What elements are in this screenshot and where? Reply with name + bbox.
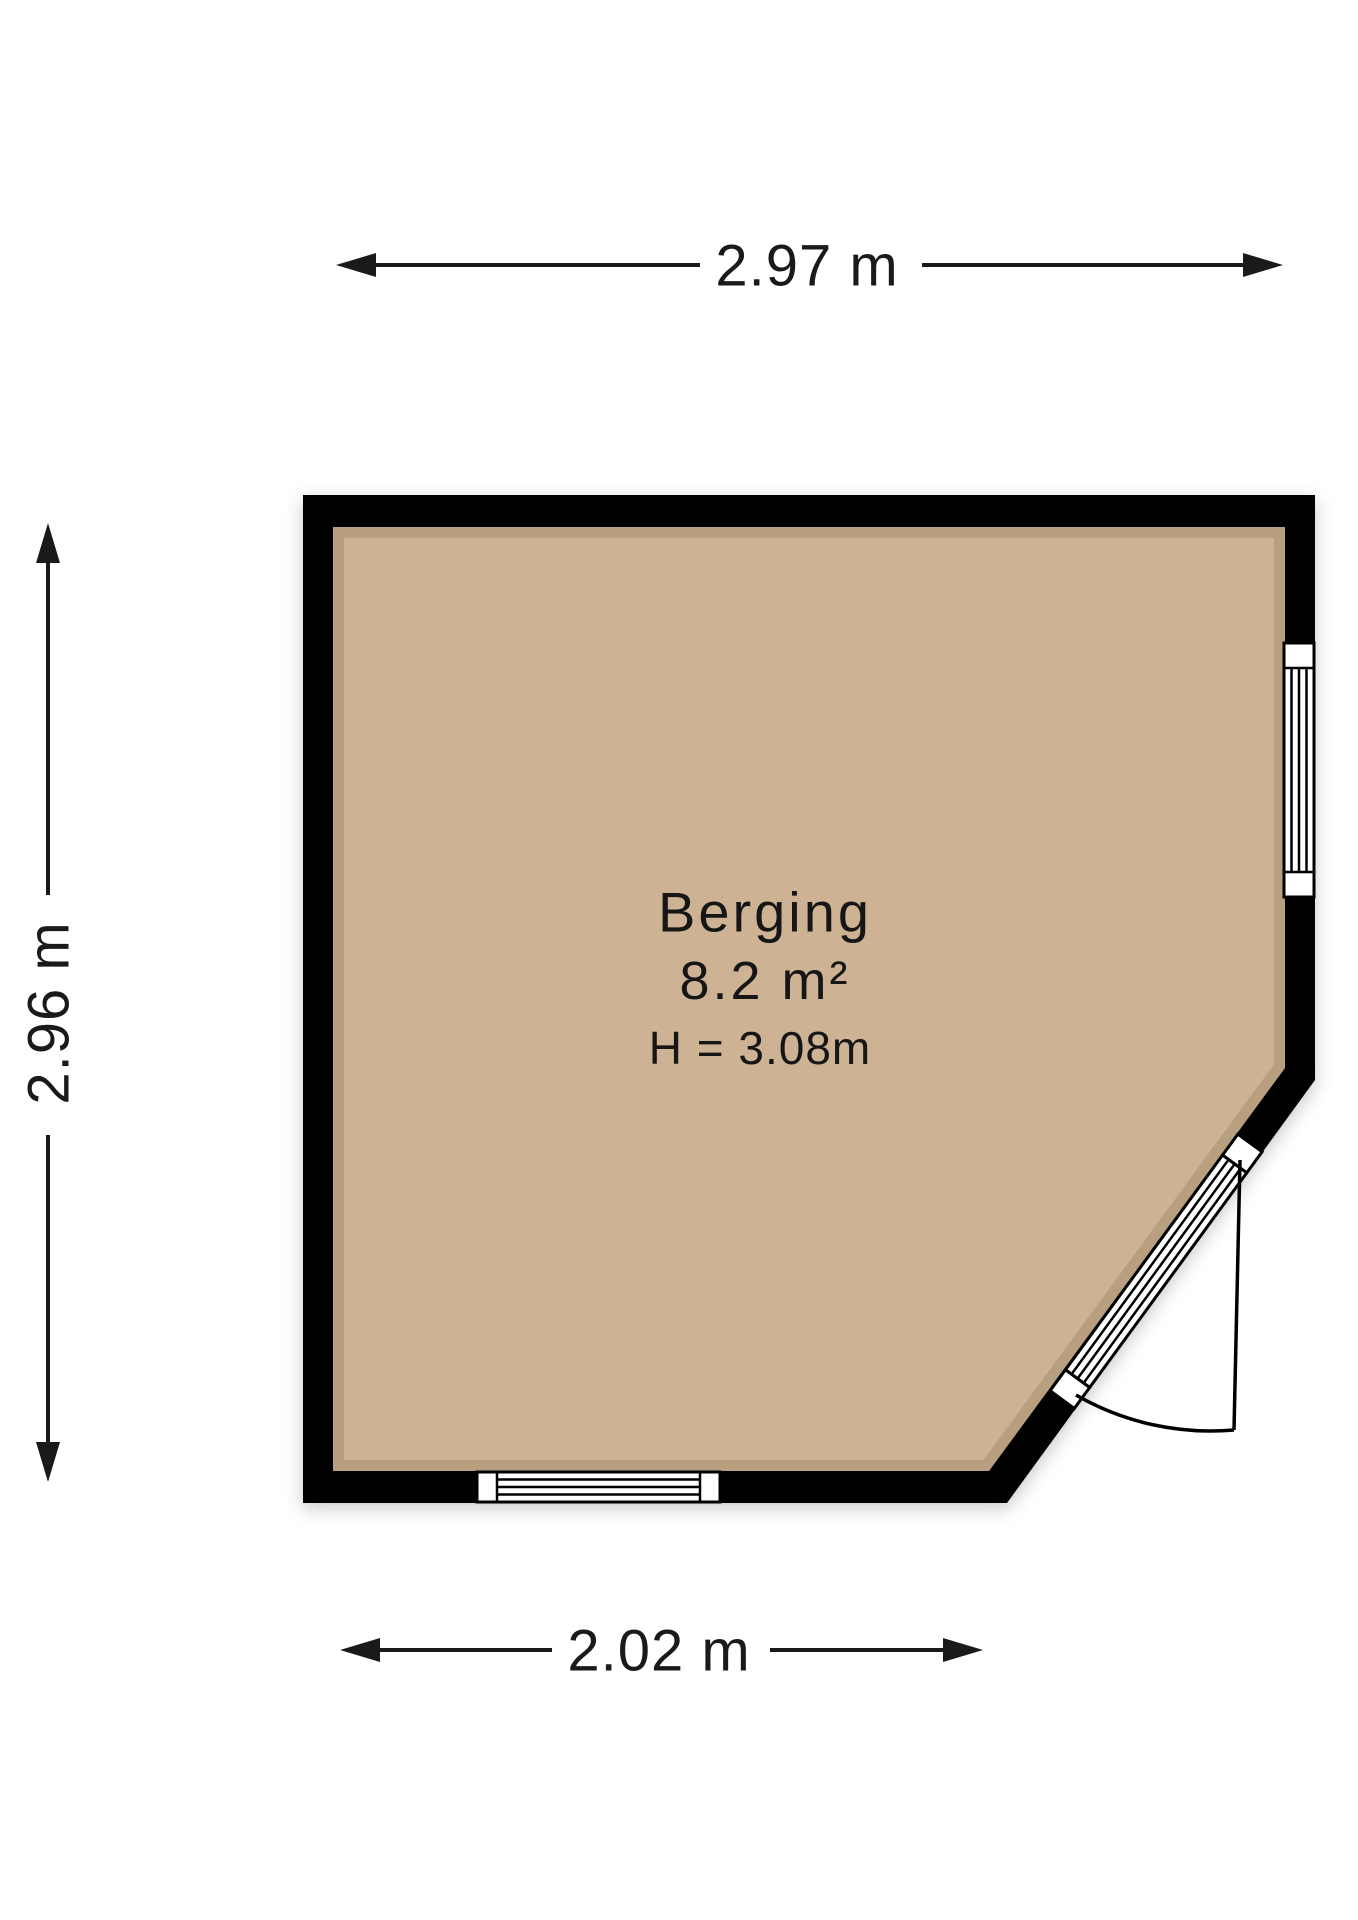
top-dimension-right-arrowhead bbox=[1243, 253, 1283, 277]
bottom-dimension-label: 2.02 m bbox=[567, 1618, 750, 1683]
room-area-label: 8.2 m² bbox=[679, 951, 850, 1011]
door-leaf bbox=[1234, 1160, 1240, 1430]
bottom-dimension: 2.02 m bbox=[340, 1618, 983, 1683]
room-ceiling-height-label: H = 3.08m bbox=[649, 1022, 872, 1074]
top-dimension-label: 2.97 m bbox=[715, 233, 898, 298]
right-window bbox=[1284, 643, 1314, 897]
door-swing-arc bbox=[1076, 1395, 1234, 1431]
bottom-window bbox=[477, 1472, 720, 1502]
room-labels: Berging 8.2 m² H = 3.08m bbox=[649, 881, 872, 1075]
top-dimension: 2.97 m bbox=[336, 233, 1283, 298]
left-dimension: 2.96 m bbox=[16, 523, 81, 1482]
left-dimension-label: 2.96 m bbox=[16, 921, 81, 1104]
left-dimension-bottom-arrowhead bbox=[36, 1442, 60, 1482]
floorplan-canvas: 2.97 m 2.96 m 2.02 m bbox=[0, 0, 1358, 1920]
room-name-label: Berging bbox=[658, 881, 872, 944]
bottom-dimension-right-arrowhead bbox=[943, 1638, 983, 1662]
floorplan-page: 2.97 m 2.96 m 2.02 m bbox=[0, 0, 1358, 1920]
